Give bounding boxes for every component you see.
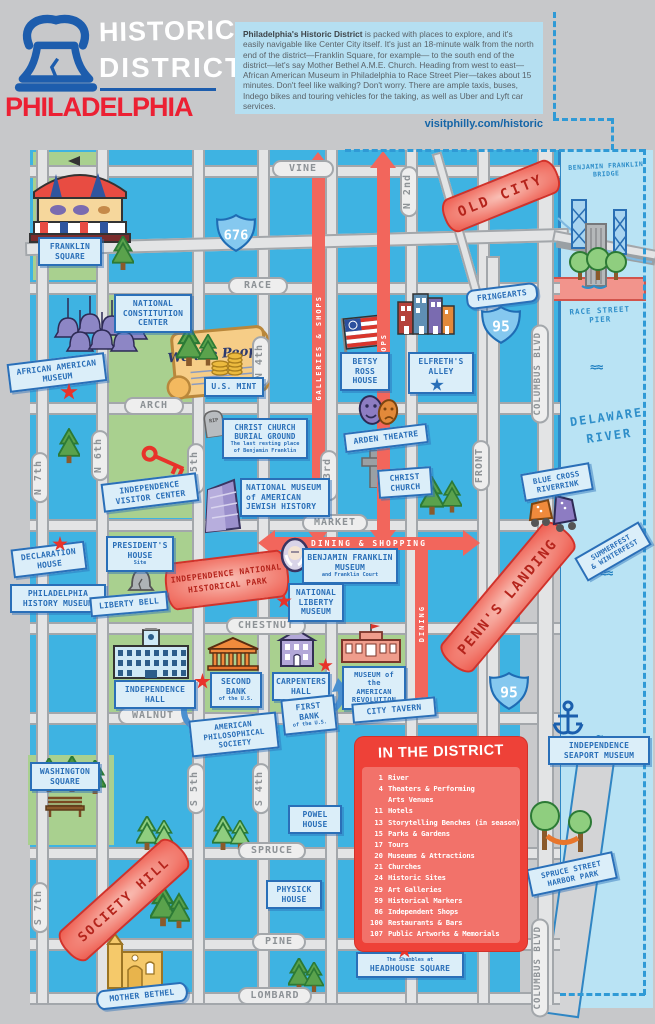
pier-trees-icon (566, 246, 630, 282)
first-bank-plaque: FIRST BANKof the U.S. (280, 694, 337, 735)
franklin-court-subtitle: and Franklin Court (306, 572, 394, 579)
district-boundary (560, 993, 645, 996)
revolution-museum-building-icon (340, 624, 402, 664)
race-street-label: RACE (228, 277, 288, 295)
vine-street-label: VINE (272, 160, 334, 178)
franklin-square-plaque: FRANKLIN SQUARE (38, 237, 102, 266)
seaport-museum-plaque: INDEPENDENCE SEAPORT MUSEUM (548, 736, 650, 765)
independence-hall-building-icon (110, 628, 192, 682)
historic-district-map-poster: HISTORIC DISTRICT PHILADELPHIA Philadelp… (0, 0, 655, 1024)
legend-row: 15Parks & Gardens (365, 828, 517, 839)
legend-title: IN THE DISTRICT (355, 742, 527, 762)
jewish-history-museum-building-icon (202, 476, 244, 536)
district-boundary (553, 12, 556, 118)
legend-row: 24Historic Sites (365, 872, 517, 883)
christ-church-plaque: CHRIST CHURCH (377, 466, 433, 499)
district-boundary (345, 149, 645, 152)
i676-number: 676 (224, 227, 249, 243)
arch-street-label: ARCH (124, 397, 184, 415)
us-mint-plaque: U.S. MINT (204, 377, 264, 397)
district-boundary (611, 118, 614, 150)
rowhouses-icon (396, 290, 464, 336)
arrowhead-right (463, 530, 480, 556)
liberty-museum-plaque: NATIONAL LIBERTY MUSEUM (288, 583, 344, 622)
s4th-street-label: S 4th (252, 763, 270, 814)
pine-tree-icon (442, 480, 462, 514)
constitution-center-plaque: NATIONAL CONSTITUTION CENTER (114, 294, 192, 333)
n6th-street-label: N 6th (91, 430, 109, 481)
park-bench-icon (44, 796, 86, 818)
powel-house-plaque: POWEL HOUSE (288, 805, 342, 834)
columbus-blvd-label: COLUMBUS BLVD (531, 324, 549, 423)
pine-street-label: PINE (252, 933, 306, 951)
brand-underline (100, 88, 216, 91)
wave-marks: ≈≈ (590, 360, 602, 374)
legend-row: 4Theaters & Performing Arts Venues (365, 783, 517, 805)
dining-arrow: DINING (408, 548, 434, 716)
presidents-house-site: Site (110, 560, 170, 567)
pine-tree-icon (58, 428, 80, 464)
intro-paragraph: Philadelphia's Historic District is pack… (235, 22, 543, 114)
front-street-label: FRONT (472, 440, 490, 491)
seventh-street (36, 150, 49, 1003)
in-the-district-legend: IN THE DISTRICT 1River 4Theaters & Perfo… (355, 737, 527, 951)
columbus-blvd-south-label: COLUMBUS BLVD (531, 918, 549, 1017)
legend-row: 1River (365, 772, 517, 783)
burial-ground-plaque: CHRIST CHURCH BURIAL GROUNDThe last rest… (222, 418, 308, 459)
district-boundary (553, 118, 613, 121)
n7th-street-label: N 7th (31, 452, 49, 503)
jewish-history-museum-plaque: NATIONAL MUSEUM of AMERICAN JEWISH HISTO… (240, 478, 330, 517)
legend-row: 11Hotels (365, 805, 517, 816)
i95-number: 95 (500, 684, 518, 701)
betsy-ross-house-plaque: BETSY ROSS HOUSE (340, 352, 390, 391)
arrow-label: DINING & SHOPPING (311, 539, 427, 548)
spruce-street-label: SPRUCE (238, 842, 306, 860)
franklin-museum-plaque: BENJAMIN FRANKLIN MUSEUMand Franklin Cou… (302, 548, 398, 584)
brand-district: DISTRICT (99, 52, 244, 84)
mother-bethel-church-icon (102, 930, 168, 990)
arrow-label: DINING (418, 605, 426, 642)
arrow-label: GALLERIES & SHOPS (315, 295, 323, 401)
legend-row: 13Storytelling Benches (in season) (365, 817, 517, 828)
i95-shield-north: 95 (480, 306, 522, 344)
pine-tree-icon (198, 334, 218, 366)
legend-row: 21Churches (365, 861, 517, 872)
district-boundary (643, 149, 646, 995)
lombard-street-label: LOMBARD (238, 987, 312, 1005)
first-bank-subtitle: of the U.S. (287, 719, 333, 730)
second-bank-building-icon (204, 636, 262, 672)
pine-tree-icon (168, 888, 190, 934)
physick-house-plaque: PHYSICK HOUSE (266, 880, 322, 909)
shambles-subtitle: The Shambles at (360, 957, 460, 964)
legend-row: 86Independent Shops (365, 906, 517, 917)
brand-historic: HISTORIC (99, 15, 236, 48)
legend-row: 107Public Artworks & Memorials (365, 928, 517, 939)
elfreths-alley-plaque: ELFRETH'S ALLEY (408, 352, 474, 394)
theatre-masks-icon (356, 394, 402, 428)
legend-row: 100Restaurants & Bars (365, 917, 517, 928)
i95-shield-south: 95 (488, 672, 530, 710)
i676-shield: 676 (215, 214, 257, 252)
i95-number: 95 (492, 318, 510, 335)
brand-philadelphia: PHILADELPHIA (5, 92, 193, 123)
anchor-icon (550, 700, 586, 740)
second-bank-plaque: SECOND BANKof the U.S. (210, 672, 262, 708)
legend-row: 29Art Galleries (365, 884, 517, 895)
legend-panel: 1River 4Theaters & Performing Arts Venue… (362, 767, 520, 943)
washington-square-plaque: WASHINGTON SQUARE (30, 762, 100, 791)
legend-row: 59Historical Markers (365, 895, 517, 906)
n2nd-street-label: N 2nd (400, 166, 418, 217)
s7th-street-label: S 7th (31, 882, 49, 933)
legend-row: 20Museums & Attractions (365, 850, 517, 861)
sixth-street (96, 150, 109, 1003)
intro-lead: Philadelphia's Historic District (243, 29, 363, 39)
burial-ground-subtitle: The last resting place of Benjamin Frank… (226, 441, 304, 454)
second-bank-subtitle: of the U.S. (214, 696, 258, 703)
hammock-trees-icon (528, 794, 596, 856)
rip-text: RIP (209, 417, 219, 424)
pine-tree-icon (112, 236, 134, 270)
presidents-house-plaque: PRESIDENT'S HOUSESite (106, 536, 174, 572)
legend-row: 17Tours (365, 839, 517, 850)
independence-hall-plaque: INDEPENDENCE HALL (114, 680, 196, 709)
s5th-street-label: S 5th (187, 763, 205, 814)
intro-body: is packed with places to explore, and it… (243, 29, 534, 111)
visitphilly-url[interactable]: visitphilly.com/historic (343, 118, 543, 130)
headhouse-square-plaque: The Shambles atHEADHOUSE SQUARE (356, 952, 464, 978)
